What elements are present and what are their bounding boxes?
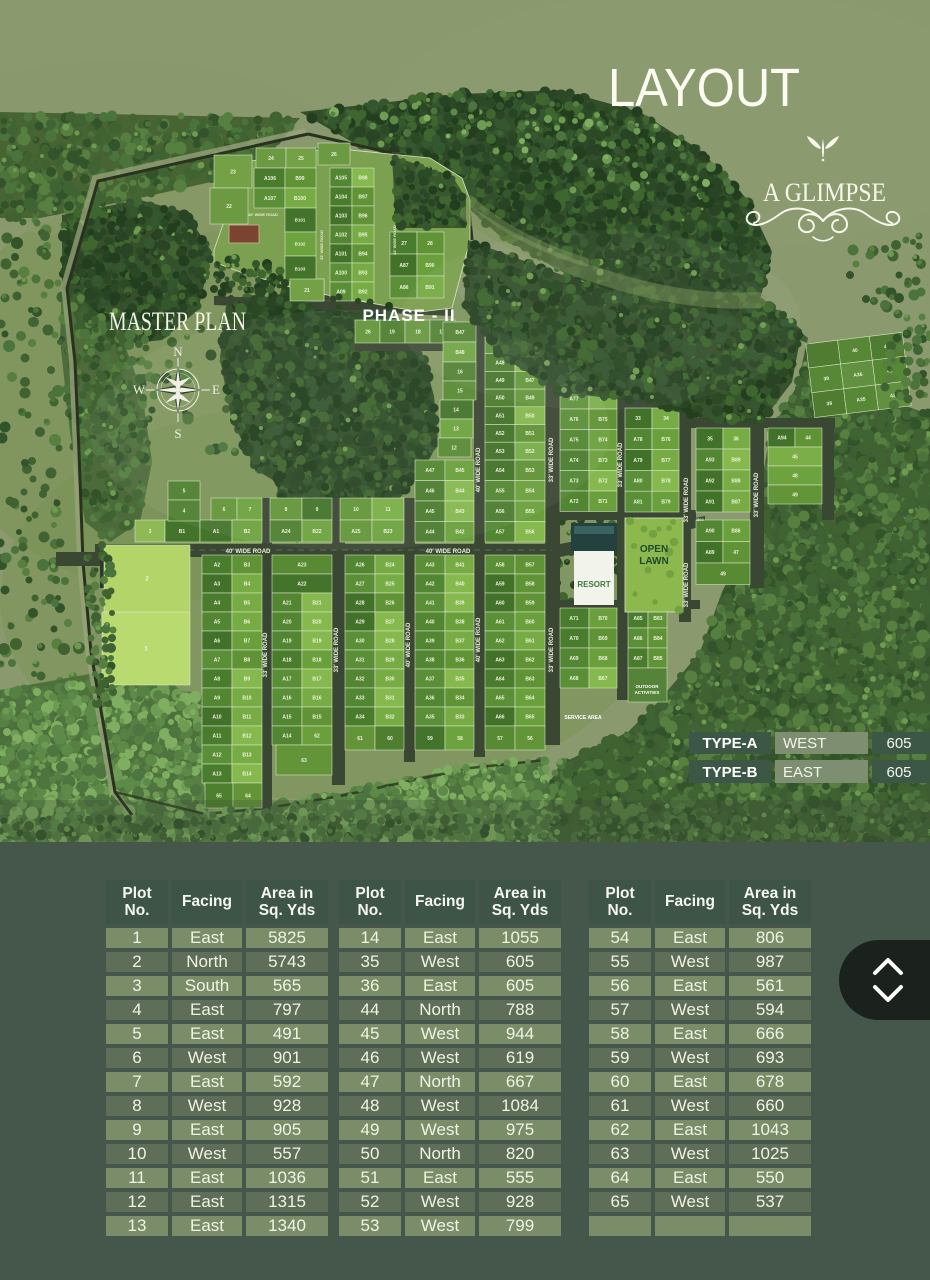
svg-text:A11: A11	[213, 733, 222, 739]
svg-text:B62: B62	[525, 657, 534, 663]
svg-text:B56: B56	[525, 530, 534, 536]
svg-text:B95: B95	[358, 232, 367, 238]
svg-text:A80: A80	[633, 479, 642, 485]
svg-text:RESORT: RESORT	[577, 580, 610, 589]
svg-text:A102: A102	[335, 232, 347, 238]
svg-text:21: 21	[304, 288, 310, 294]
svg-text:A9: A9	[214, 695, 221, 701]
svg-text:A27: A27	[355, 581, 364, 587]
svg-text:25: 25	[298, 156, 304, 162]
svg-text:B12: B12	[242, 733, 251, 739]
svg-text:B29: B29	[385, 657, 394, 663]
svg-text:A100: A100	[335, 270, 347, 276]
svg-text:40: 40	[852, 348, 858, 355]
svg-text:B79: B79	[661, 499, 670, 505]
svg-text:B28: B28	[385, 638, 394, 644]
svg-text:B39: B39	[455, 600, 464, 606]
svg-text:B99: B99	[295, 176, 304, 182]
svg-text:A81: A81	[633, 499, 642, 505]
svg-text:A42: A42	[425, 581, 434, 587]
svg-text:26: 26	[331, 152, 337, 158]
svg-text:B67: B67	[598, 676, 607, 682]
svg-text:B16: B16	[312, 695, 321, 701]
svg-text:605: 605	[886, 764, 911, 781]
svg-text:A8: A8	[214, 676, 221, 682]
svg-text:33′ WIDE ROAD: 33′ WIDE ROAD	[319, 230, 324, 260]
svg-text:B72: B72	[598, 479, 607, 485]
svg-text:B59: B59	[525, 600, 534, 606]
svg-text:60: 60	[387, 736, 393, 742]
svg-text:B86: B86	[731, 529, 740, 535]
svg-text:A63: A63	[495, 657, 504, 663]
svg-text:A7: A7	[214, 657, 221, 663]
svg-text:64: 64	[245, 793, 251, 799]
svg-text:A107: A107	[264, 196, 276, 202]
svg-text:A33: A33	[355, 695, 364, 701]
svg-text:B15: B15	[312, 714, 321, 720]
svg-text:27: 27	[401, 241, 407, 247]
svg-text:B92: B92	[358, 289, 367, 295]
svg-text:B4: B4	[244, 581, 251, 587]
svg-text:A85: A85	[633, 616, 642, 622]
svg-text:B14: B14	[242, 771, 251, 777]
svg-text:A91: A91	[705, 499, 714, 505]
svg-text:EAST: EAST	[783, 764, 822, 781]
svg-text:49: 49	[720, 572, 726, 578]
svg-text:33′ WIDE ROAD: 33′ WIDE ROAD	[263, 632, 269, 677]
svg-text:TYPE-A: TYPE-A	[702, 735, 757, 752]
svg-text:A32: A32	[355, 676, 364, 682]
svg-text:A86: A86	[399, 285, 408, 291]
svg-text:33′ WIDE ROAD: 33′ WIDE ROAD	[618, 442, 624, 487]
svg-text:A89: A89	[705, 550, 714, 556]
svg-text:A93: A93	[705, 457, 714, 463]
svg-text:B10: B10	[242, 695, 251, 701]
svg-text:62: 62	[314, 733, 320, 739]
svg-text:A21: A21	[282, 600, 291, 606]
svg-text:33′ WIDE ROAD: 33′ WIDE ROAD	[392, 225, 397, 255]
svg-text:A103: A103	[335, 213, 347, 219]
svg-text:A36: A36	[853, 372, 863, 379]
svg-text:A87: A87	[633, 656, 642, 662]
svg-text:OUTDOOR: OUTDOOR	[636, 684, 660, 689]
svg-text:B68: B68	[598, 656, 607, 662]
svg-text:3: 3	[149, 529, 152, 535]
svg-text:A16: A16	[282, 695, 291, 701]
svg-text:B30: B30	[385, 676, 394, 682]
svg-text:A57: A57	[495, 530, 504, 536]
svg-text:A78: A78	[633, 437, 642, 443]
svg-text:B36: B36	[455, 657, 464, 663]
svg-text:B26: B26	[385, 600, 394, 606]
svg-text:A28: A28	[355, 600, 364, 606]
svg-text:A38: A38	[425, 657, 434, 663]
svg-text:B70: B70	[598, 616, 607, 622]
svg-text:B93: B93	[358, 270, 367, 276]
svg-text:A61: A61	[495, 619, 504, 625]
svg-text:A72: A72	[569, 499, 578, 505]
svg-text:LAYOUT: LAYOUT	[608, 59, 800, 118]
svg-text:33′ WIDE ROAD: 33′ WIDE ROAD	[549, 627, 555, 672]
svg-text:33′ WIDE ROAD: 33′ WIDE ROAD	[754, 472, 760, 517]
svg-text:33′ WIDE ROAD: 33′ WIDE ROAD	[684, 477, 690, 522]
svg-text:A3: A3	[214, 581, 221, 587]
svg-text:A64: A64	[495, 676, 504, 682]
svg-text:B60: B60	[696, 517, 704, 522]
svg-text:B38: B38	[455, 619, 464, 625]
svg-text:40′ WIDE ROAD: 40′ WIDE ROAD	[476, 617, 482, 662]
svg-text:A39: A39	[425, 638, 434, 644]
svg-text:32′ WIDE ROAD: 32′ WIDE ROAD	[248, 212, 278, 217]
svg-text:A43: A43	[425, 562, 434, 568]
svg-text:A60: A60	[495, 600, 504, 606]
svg-text:58: 58	[457, 736, 463, 742]
svg-text:B64: B64	[525, 695, 534, 701]
svg-text:A62: A62	[495, 638, 504, 644]
svg-text:A17: A17	[282, 676, 291, 682]
svg-text:A18: A18	[282, 657, 291, 663]
svg-text:A79: A79	[633, 458, 642, 464]
svg-text:B97: B97	[358, 194, 367, 200]
svg-text:A30: A30	[355, 638, 364, 644]
svg-text:A19: A19	[282, 638, 291, 644]
svg-text:B9: B9	[244, 676, 251, 682]
svg-text:B20: B20	[312, 619, 321, 625]
svg-text:B17: B17	[312, 676, 321, 682]
svg-text:A41: A41	[425, 600, 434, 606]
svg-text:B65: B65	[525, 714, 534, 720]
svg-text:A68: A68	[569, 676, 578, 682]
svg-text:61: 61	[357, 736, 363, 742]
svg-text:33: 33	[635, 416, 641, 422]
svg-text:B32: B32	[385, 714, 394, 720]
svg-text:A104: A104	[335, 194, 347, 200]
svg-text:A40: A40	[425, 619, 434, 625]
svg-text:B18: B18	[312, 657, 321, 663]
svg-text:B85: B85	[653, 656, 662, 662]
svg-text:35: 35	[707, 436, 713, 442]
svg-text:63: 63	[301, 758, 307, 764]
svg-text:B3: B3	[244, 562, 251, 568]
svg-text:A GLIMPSE: A GLIMPSE	[763, 178, 886, 207]
svg-text:A86: A86	[633, 636, 642, 642]
svg-text:OPEN: OPEN	[640, 544, 668, 555]
svg-text:B6: B6	[244, 619, 251, 625]
svg-text:40′ WIDE ROAD: 40′ WIDE ROAD	[226, 549, 271, 555]
svg-text:B100: B100	[294, 196, 306, 202]
svg-text:B35: B35	[455, 676, 464, 682]
svg-text:38: 38	[826, 401, 832, 408]
svg-text:B24: B24	[385, 562, 394, 568]
svg-text:44: 44	[805, 435, 811, 441]
svg-text:B1: B1	[179, 529, 186, 535]
svg-text:A36: A36	[425, 695, 434, 701]
svg-text:A94: A94	[777, 435, 786, 441]
svg-text:A71: A71	[569, 616, 578, 622]
svg-text:605: 605	[886, 735, 911, 752]
svg-text:B11: B11	[243, 714, 252, 720]
svg-text:A58: A58	[495, 562, 504, 568]
svg-text:B102: B102	[295, 242, 306, 247]
svg-text:A92: A92	[705, 478, 714, 484]
svg-text:23: 23	[230, 169, 236, 175]
svg-text:B5: B5	[244, 600, 251, 606]
svg-text:A35: A35	[425, 714, 434, 720]
svg-text:B69: B69	[598, 636, 607, 642]
svg-text:A90: A90	[705, 529, 714, 535]
svg-text:B21: B21	[312, 600, 321, 606]
svg-text:A10: A10	[212, 714, 221, 720]
svg-text:B31: B31	[385, 695, 394, 701]
svg-text:A31: A31	[355, 657, 364, 663]
svg-text:33′ WIDE ROAD: 33′ WIDE ROAD	[334, 627, 340, 672]
svg-text:B101: B101	[295, 218, 306, 223]
svg-text:A59: A59	[495, 581, 504, 587]
svg-text:40′ WIDE ROAD: 40′ WIDE ROAD	[406, 622, 412, 667]
svg-text:49: 49	[792, 492, 798, 498]
svg-text:B25: B25	[385, 581, 394, 587]
svg-text:B76: B76	[661, 437, 670, 443]
svg-text:A5: A5	[214, 619, 221, 625]
svg-text:A20: A20	[282, 619, 291, 625]
svg-text:ACTIVITIES: ACTIVITIES	[635, 690, 660, 695]
svg-text:A101: A101	[335, 251, 347, 257]
svg-text:48: 48	[792, 473, 798, 479]
svg-text:B78: B78	[661, 479, 670, 485]
svg-text:B19: B19	[312, 638, 321, 644]
svg-text:B40: B40	[455, 581, 464, 587]
svg-text:B61: B61	[525, 638, 534, 644]
svg-text:B33: B33	[455, 714, 464, 720]
svg-text:34: 34	[663, 416, 669, 422]
svg-text:B89: B89	[731, 457, 740, 463]
svg-text:B98: B98	[358, 175, 367, 181]
svg-text:B8: B8	[244, 657, 251, 663]
svg-text:28: 28	[427, 241, 433, 247]
svg-text:A13: A13	[212, 771, 221, 777]
svg-text:B77: B77	[661, 458, 670, 464]
svg-text:SERVICE AREA: SERVICE AREA	[564, 715, 602, 721]
svg-text:65: 65	[216, 793, 222, 799]
svg-text:A12: A12	[212, 752, 221, 758]
svg-text:A70: A70	[569, 636, 578, 642]
svg-text:B57: B57	[525, 562, 534, 568]
svg-text:33′ WIDE ROAD: 33′ WIDE ROAD	[684, 562, 690, 607]
svg-text:A69: A69	[569, 656, 578, 662]
svg-text:A34: A34	[355, 714, 364, 720]
svg-text:A29: A29	[355, 619, 364, 625]
svg-text:B83: B83	[653, 616, 662, 622]
svg-text:B84: B84	[653, 636, 662, 642]
svg-text:B41: B41	[455, 562, 464, 568]
svg-text:A65: A65	[495, 695, 504, 701]
svg-text:56: 56	[527, 736, 533, 742]
svg-text:B60: B60	[525, 619, 534, 625]
svg-text:22: 22	[226, 204, 232, 210]
svg-text:B88: B88	[731, 478, 740, 484]
svg-text:B71: B71	[598, 499, 607, 505]
svg-text:39: 39	[823, 376, 829, 383]
svg-text:A15: A15	[282, 714, 291, 720]
svg-text:A106: A106	[264, 176, 276, 182]
svg-text:B103: B103	[295, 267, 306, 272]
svg-text:47: 47	[733, 550, 739, 556]
svg-text:A2: A2	[214, 562, 221, 568]
svg-text:TYPE-B: TYPE-B	[702, 764, 757, 781]
svg-text:A6: A6	[214, 638, 221, 644]
svg-text:B96: B96	[358, 213, 367, 219]
svg-text:B90: B90	[425, 263, 434, 269]
svg-text:A87: A87	[399, 263, 408, 269]
svg-text:LAWN: LAWN	[639, 556, 668, 567]
svg-text:B27: B27	[385, 619, 394, 625]
svg-text:A23: A23	[297, 562, 306, 568]
svg-text:A22: A22	[297, 581, 306, 587]
svg-text:B37: B37	[455, 638, 464, 644]
svg-text:45: 45	[792, 454, 798, 460]
svg-text:B94: B94	[358, 251, 367, 257]
svg-text:A26: A26	[355, 562, 364, 568]
svg-text:A35: A35	[856, 397, 866, 404]
svg-text:B7: B7	[244, 638, 251, 644]
svg-text:59: 59	[427, 736, 433, 742]
svg-text:B13: B13	[242, 752, 251, 758]
svg-text:36: 36	[733, 436, 739, 442]
svg-text:A14: A14	[282, 733, 291, 739]
svg-text:A105: A105	[335, 175, 347, 181]
svg-text:40′ WIDE ROAD: 40′ WIDE ROAD	[426, 549, 471, 555]
svg-text:B58: B58	[525, 581, 534, 587]
svg-text:24: 24	[268, 156, 274, 162]
svg-text:A66: A66	[495, 714, 504, 720]
svg-text:57: 57	[497, 736, 503, 742]
svg-text:A4: A4	[214, 600, 221, 606]
svg-text:B34: B34	[455, 695, 464, 701]
svg-text:B63: B63	[525, 676, 534, 682]
svg-text:A37: A37	[425, 676, 434, 682]
svg-text:WEST: WEST	[783, 735, 826, 752]
svg-text:B87: B87	[731, 499, 740, 505]
